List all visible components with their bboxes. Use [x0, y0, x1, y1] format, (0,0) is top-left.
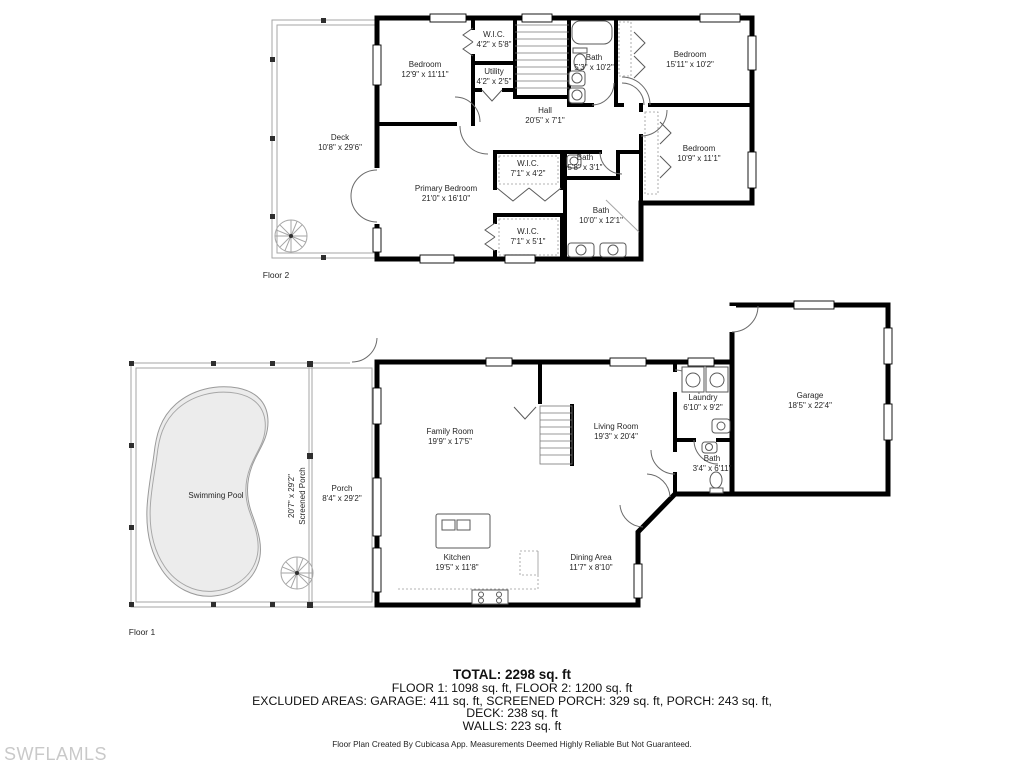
room-dims: 8'4" x 29'2": [322, 494, 362, 503]
room-name: Bedroom: [674, 50, 707, 59]
room-name: W.I.C.: [517, 159, 539, 168]
room-name: Deck: [331, 133, 350, 142]
room-dims: 7'1" x 5'1": [511, 237, 546, 246]
room-dims: 19'3" x 20'4": [594, 432, 638, 441]
room-dims: 5'8" x 3'1": [568, 163, 603, 172]
floor2-labels: Bedroom 12'9" x 11'11" W.I.C. 4'2" x 5'8…: [263, 30, 721, 280]
room-dims: 4'2" x 5'8": [477, 40, 512, 49]
sink-icon: [442, 520, 455, 530]
room-name: Dining Area: [570, 553, 612, 562]
toilet-icon: [710, 472, 722, 488]
room-name: Primary Bedroom: [415, 184, 478, 193]
room-name: Kitchen: [444, 553, 471, 562]
disclaimer-text: Floor Plan Created By Cubicasa App. Meas…: [0, 740, 1024, 749]
floor-plan-page: Bedroom 12'9" x 11'11" W.I.C. 4'2" x 5'8…: [0, 0, 1024, 768]
deck-area-text: DECK: 238 sq. ft: [0, 707, 1024, 720]
floor-1-plan: Swimming Pool Screened Porch 20'7" x 29'…: [129, 301, 892, 637]
room-dims: 3'4" x 6'11": [693, 464, 732, 473]
room-dims: 12'9" x 11'11": [401, 70, 448, 79]
room-name: Porch: [332, 484, 353, 493]
room-name: Family Room: [426, 427, 473, 436]
room-dims: 18'5" x 22'4": [788, 401, 832, 410]
room-name: Laundry: [689, 393, 718, 402]
sink-icon: [457, 520, 470, 530]
room-dims: 11'7" x 8'10": [569, 563, 612, 572]
mls-watermark: SWFLAMLS: [4, 744, 107, 765]
floor-areas-text: FLOOR 1: 1098 sq. ft, FLOOR 2: 1200 sq. …: [0, 682, 1024, 695]
deck-structure: [270, 18, 377, 260]
room-name: W.I.C.: [517, 227, 539, 236]
staircase-icon: [514, 406, 572, 464]
stove-icon: [472, 590, 508, 604]
room-name: Bath: [586, 53, 602, 62]
bathtub-icon: [572, 21, 612, 44]
staircase-icon: [515, 25, 569, 88]
walls-area-text: WALLS: 223 sq. ft: [0, 720, 1024, 733]
room-name: Bath: [704, 454, 720, 463]
floor-plan-image: Bedroom 12'9" x 11'11" W.I.C. 4'2" x 5'8…: [0, 0, 1024, 768]
total-area-text: TOTAL: 2298 sq. ft: [0, 668, 1024, 682]
room-dims: 20'5" x 7'1": [525, 116, 565, 125]
room-dims: 10'9" x 11'1": [677, 154, 720, 163]
floor1-caption: Floor 1: [129, 627, 156, 637]
room-name: Swimming Pool: [188, 491, 243, 500]
room-dims: 10'8" x 29'6": [318, 143, 362, 152]
room-name: Hall: [538, 106, 552, 115]
room-name: Screened Porch: [298, 467, 307, 524]
room-dims: 4'2" x 2'5": [477, 77, 512, 86]
spiral-staircase-icon: [281, 557, 313, 589]
room-name: Bath: [577, 153, 593, 162]
room-name: Garage: [797, 391, 824, 400]
spiral-staircase-icon: [275, 220, 307, 252]
area-summary: TOTAL: 2298 sq. ft FLOOR 1: 1098 sq. ft,…: [0, 668, 1024, 732]
floor2-caption: Floor 2: [263, 270, 290, 280]
room-name: Bath: [593, 206, 609, 215]
room-dims: 7'1" x 4'2": [511, 169, 546, 178]
kitchen-island: [436, 514, 490, 548]
room-dims: 6'10" x 9'2": [683, 403, 723, 412]
room-name: Living Room: [594, 422, 639, 431]
room-dims: 21'0" x 16'10": [422, 194, 470, 203]
room-dims: 15'11" x 10'2": [666, 60, 714, 69]
room-dims: 19'5" x 11'8": [435, 563, 478, 572]
room-name: W.I.C.: [483, 30, 505, 39]
room-dims: 19'9" x 17'5": [428, 437, 472, 446]
room-dims: 20'7" x 29'2": [287, 474, 296, 518]
floor-2-plan: Bedroom 12'9" x 11'11" W.I.C. 4'2" x 5'8…: [263, 14, 756, 280]
room-name: Bedroom: [683, 144, 716, 153]
room-dims: 5'3" x 10'2": [574, 63, 614, 72]
room-name: Bedroom: [409, 60, 442, 69]
room-name: Utility: [484, 67, 504, 76]
room-dims: 10'0" x 12'1": [579, 216, 623, 225]
